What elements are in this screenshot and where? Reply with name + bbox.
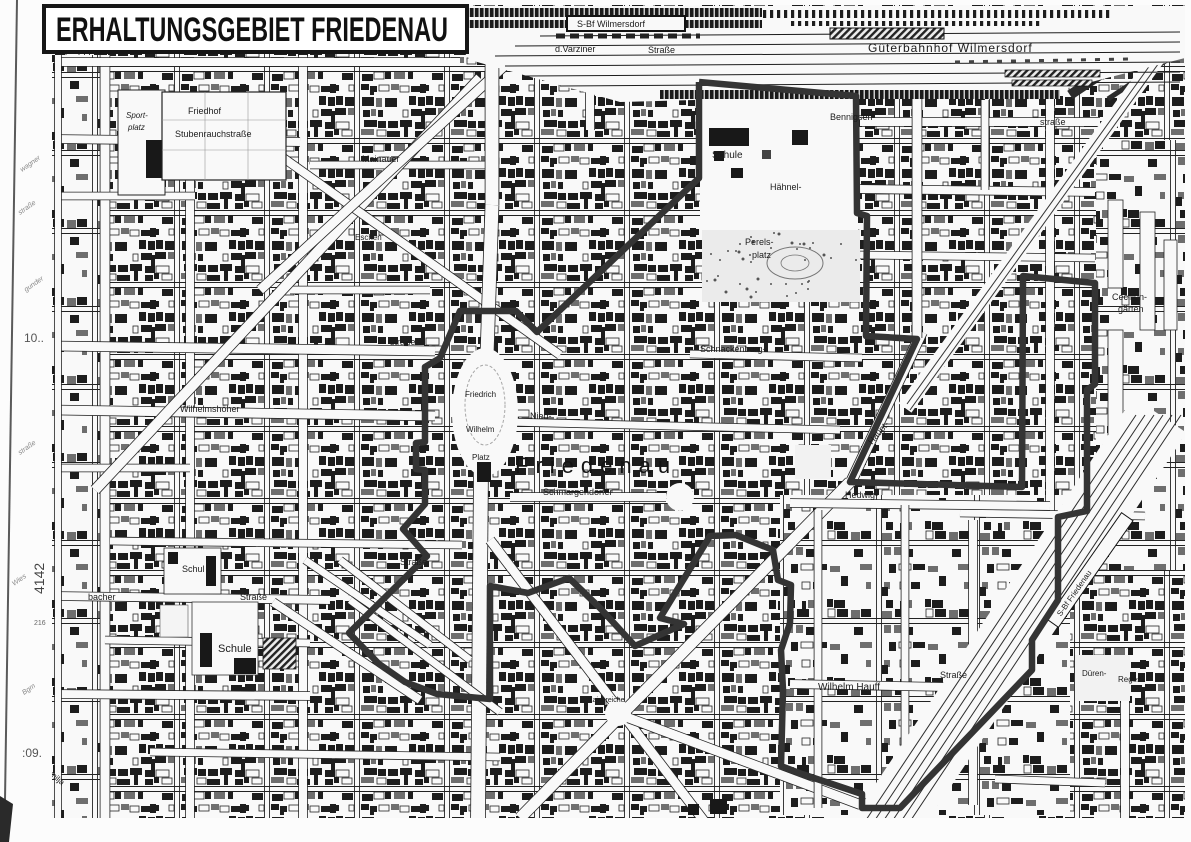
svg-text::09.: :09. xyxy=(22,746,42,760)
svg-text:ERHALTUNGSGEBIET FRIEDENAU: ERHALTUNGSGEBIET FRIEDENAU xyxy=(56,11,448,49)
svg-text:4142: 4142 xyxy=(31,563,47,594)
svg-text:10..: 10.. xyxy=(24,331,44,345)
svg-text:216: 216 xyxy=(34,620,46,627)
